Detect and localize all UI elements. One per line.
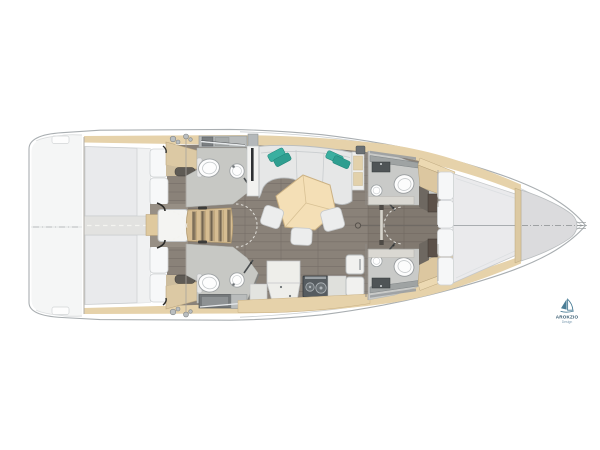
- svg-text:Design: Design: [562, 320, 573, 324]
- svg-text:AROKZIO: AROKZIO: [556, 315, 579, 320]
